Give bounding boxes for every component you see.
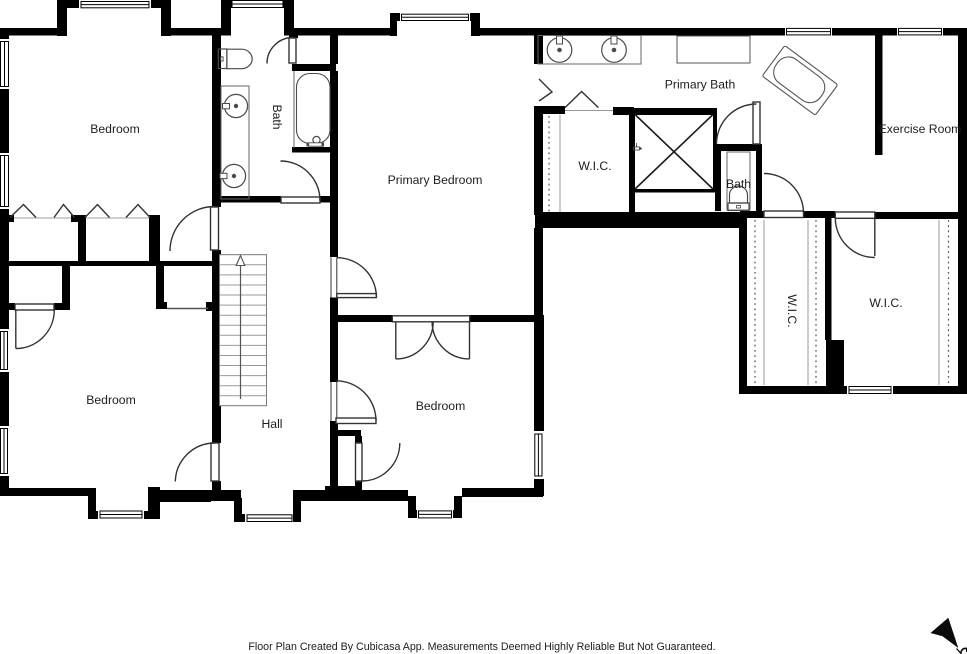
svg-text:W.I.C.: W.I.C.	[785, 294, 799, 327]
svg-text:W.I.C.: W.I.C.	[578, 159, 611, 173]
svg-text:Bedroom: Bedroom	[90, 122, 139, 136]
svg-text:Bedroom: Bedroom	[416, 399, 465, 413]
svg-text:Floor Plan Created By Cubicasa: Floor Plan Created By Cubicasa App. Meas…	[248, 641, 715, 653]
svg-text:Hall: Hall	[262, 417, 283, 431]
svg-text:Bath: Bath	[270, 104, 284, 129]
svg-text:W.I.C.: W.I.C.	[869, 296, 902, 310]
svg-text:Exercise Room: Exercise Room	[879, 122, 962, 136]
svg-text:Bedroom: Bedroom	[86, 393, 135, 407]
svg-text:Bath: Bath	[726, 177, 751, 191]
svg-text:Primary Bedroom: Primary Bedroom	[388, 173, 483, 187]
svg-text:Primary Bath: Primary Bath	[665, 78, 735, 92]
